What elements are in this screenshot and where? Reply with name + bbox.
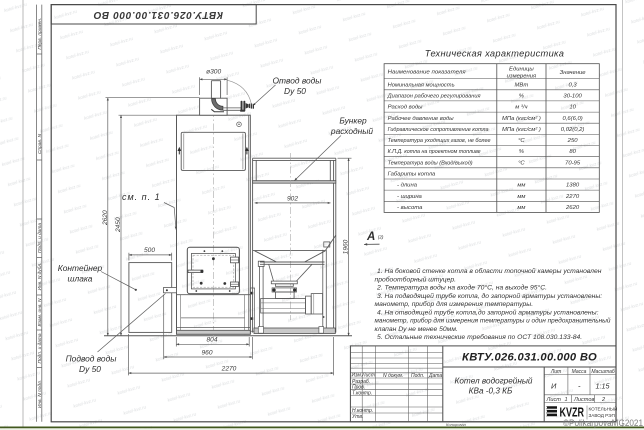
svg-text:Подп. и дата: Подп. и дата xyxy=(37,223,43,253)
svg-text:2270: 2270 xyxy=(221,365,237,372)
svg-text:манометр, прибор для измерения: манометр, прибор для измерения температу… xyxy=(375,300,534,308)
svg-text:©PolikarpovaMG2021: ©PolikarpovaMG2021 xyxy=(563,418,643,428)
svg-text:902: 902 xyxy=(287,195,298,202)
svg-text:КОТЕЛЬНЫЙ: КОТЕЛЬНЫЙ xyxy=(589,405,618,412)
svg-text:А: А xyxy=(366,231,375,243)
svg-text:Инв. N подл.: Инв. N подл. xyxy=(37,380,43,408)
svg-text:КВа -0,3 КБ: КВа -0,3 КБ xyxy=(469,386,513,395)
svg-text:Номинальная мощность: Номинальная мощность xyxy=(388,82,455,88)
svg-text:Техническая характеристика: Техническая характеристика xyxy=(425,48,564,58)
svg-text:Наименование показателя: Наименование показателя xyxy=(388,70,467,76)
svg-text:м ³/ч: м ³/ч xyxy=(515,105,527,111)
svg-text:Расход воды: Расход воды xyxy=(388,105,424,111)
svg-text:%: % xyxy=(519,94,524,100)
svg-text:Взам. инв. N: Взам. инв. N xyxy=(37,298,43,326)
svg-text:Температура уходящих газов, не: Температура уходящих газов, не более xyxy=(388,138,492,144)
svg-text:Масса: Масса xyxy=(572,369,587,375)
svg-text:МПа (кгс/см² ): МПа (кгс/см² ) xyxy=(502,116,541,122)
svg-text:шлака: шлака xyxy=(68,274,93,284)
svg-text:0,3: 0,3 xyxy=(568,82,577,88)
svg-text:N докум.: N докум. xyxy=(383,373,403,379)
svg-text:1960: 1960 xyxy=(342,239,349,254)
svg-text:°С: °С xyxy=(518,138,525,144)
svg-text:10: 10 xyxy=(569,105,576,111)
svg-text:- длина: - длина xyxy=(397,183,418,189)
svg-text:ø300: ø300 xyxy=(206,69,221,76)
svg-text:Лист: Лист xyxy=(546,397,562,403)
svg-text:см. п. 1: см. п. 1 xyxy=(122,192,161,202)
svg-text:500: 500 xyxy=(144,247,155,254)
svg-text:Лит: Лит xyxy=(550,369,561,375)
svg-text:Утв.: Утв. xyxy=(352,414,363,420)
svg-text:Справ. N: Справ. N xyxy=(37,133,43,154)
svg-text:%: % xyxy=(519,149,524,155)
svg-text:мм: мм xyxy=(517,205,525,211)
svg-text:Дата: Дата xyxy=(428,373,442,379)
svg-text:5. Остальные технические треб: 5. Остальные технические требования по О… xyxy=(377,333,582,341)
svg-text:Габариты котла: Габариты котла xyxy=(388,172,436,178)
svg-text:1380: 1380 xyxy=(566,183,580,189)
svg-text:Подп.: Подп. xyxy=(411,373,424,379)
svg-text:2270: 2270 xyxy=(565,194,580,200)
svg-text:пробоотборный штуцер.: пробоотборный штуцер. xyxy=(375,275,457,283)
svg-text:расходный: расходный xyxy=(330,126,373,136)
svg-text:70-95: 70-95 xyxy=(565,160,581,166)
svg-text:Температура воды (Вход/выход): Температура воды (Вход/выход) xyxy=(388,160,473,166)
svg-text:Котел водогрейный: Котел водогрейный xyxy=(455,376,533,385)
svg-text:К.П.Д. котла на проектном топл: К.П.Д. котла на проектном топливе xyxy=(388,149,482,155)
svg-text:Подвод воды: Подвод воды xyxy=(66,354,117,364)
svg-text:Гидравлическое сопротивление к: Гидравлическое сопротивление котла xyxy=(388,127,490,133)
svg-text:1:15: 1:15 xyxy=(596,382,611,391)
svg-text:Dy 50: Dy 50 xyxy=(79,364,101,374)
svg-text:1: 1 xyxy=(565,397,568,403)
svg-text:804: 804 xyxy=(206,337,217,344)
svg-text:Масштаб: Масштаб xyxy=(591,369,615,375)
svg-text:250: 250 xyxy=(567,138,579,144)
svg-text:Подп. и дата: Подп. и дата xyxy=(37,333,43,363)
svg-text:30-100: 30-100 xyxy=(563,94,582,100)
svg-text:Отвод воды: Отвод воды xyxy=(273,75,322,85)
svg-text:Единицы: Единицы xyxy=(509,66,534,72)
svg-text:Н.контр.: Н.контр. xyxy=(352,408,373,414)
svg-text:0,6(6,0): 0,6(6,0) xyxy=(562,116,582,122)
svg-text:960: 960 xyxy=(201,349,212,356)
svg-text:Т.контр.: Т.контр. xyxy=(352,390,372,396)
svg-text:КВТУ.026.031.00.000 ВО: КВТУ.026.031.00.000 ВО xyxy=(93,9,223,20)
svg-text:- ширина: - ширина xyxy=(397,194,423,200)
svg-text:2620: 2620 xyxy=(102,210,109,226)
svg-text:80: 80 xyxy=(569,149,576,155)
svg-text:Рабочее давление воды: Рабочее давление воды xyxy=(388,116,455,122)
svg-text:мм: мм xyxy=(517,194,525,200)
svg-text:2. Температура воды на входе: 2. Температура воды на входе 70°С, на вы… xyxy=(376,284,547,292)
svg-text:Перв. примен.: Перв. примен. xyxy=(37,18,43,50)
svg-text:Копировал: Копировал xyxy=(446,422,467,427)
svg-text:0,02(0,2): 0,02(0,2) xyxy=(561,127,585,133)
svg-text:2450: 2450 xyxy=(115,217,122,233)
svg-text:3. На подводящей трубе котла,: 3. На подводящей трубе котла, до запорно… xyxy=(377,292,602,300)
svg-text:Инв. N дубл.: Инв. N дубл. xyxy=(37,263,43,291)
svg-text:4. На отводящей трубе котла,д: 4. На отводящей трубе котла,до запорной … xyxy=(377,308,599,316)
svg-text:Dy 50: Dy 50 xyxy=(284,86,306,96)
svg-text:(2): (2) xyxy=(378,234,384,239)
svg-text:мм: мм xyxy=(517,183,525,189)
svg-text:манометр, прибор для измерения: манометр, прибор для измерения температу… xyxy=(375,317,611,325)
svg-text:измерения: измерения xyxy=(507,73,537,79)
svg-text:Диапазон рабочего регулировани: Диапазон рабочего регулирования xyxy=(387,94,482,100)
svg-text:МВт: МВт xyxy=(515,82,529,88)
svg-text:2620: 2620 xyxy=(565,205,580,211)
svg-text:КВТУ.026.031.00.000 ВО: КВТУ.026.031.00.000 ВО xyxy=(462,352,597,364)
svg-text:Значение: Значение xyxy=(560,70,587,76)
svg-text:клапан Dy не менее 50мм.: клапан Dy не менее 50мм. xyxy=(375,326,458,333)
svg-text:1. На боковой стенке котла в: 1. На боковой стенке котла в области топ… xyxy=(377,267,602,275)
svg-text:Изм.Лист: Изм.Лист xyxy=(352,373,376,379)
svg-text:Контейнер: Контейнер xyxy=(58,263,103,273)
svg-text:Бункер: Бункер xyxy=(339,115,367,125)
svg-text:°С: °С xyxy=(518,160,525,166)
svg-text:И: И xyxy=(551,381,557,390)
svg-text:МПа (кгс/см² ): МПа (кгс/см² ) xyxy=(502,127,541,133)
svg-text:- высота: - высота xyxy=(397,205,423,211)
svg-text:Листов: Листов xyxy=(573,397,594,403)
